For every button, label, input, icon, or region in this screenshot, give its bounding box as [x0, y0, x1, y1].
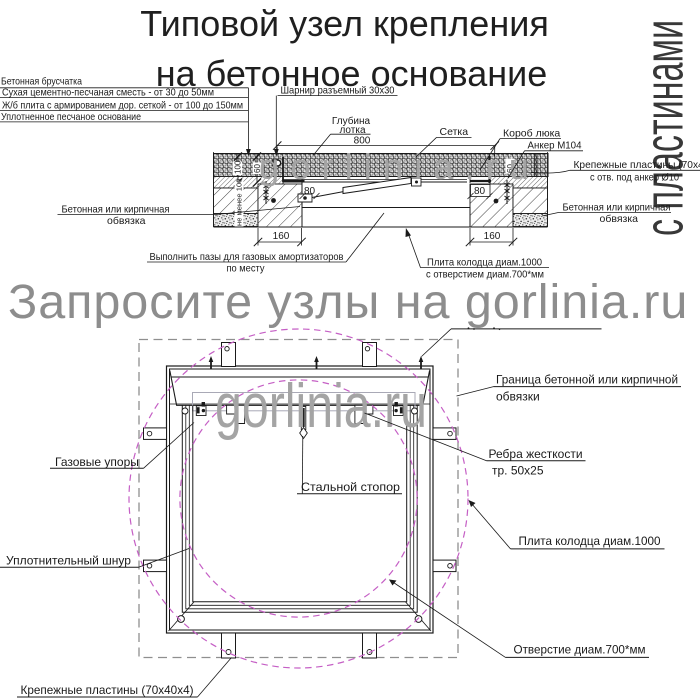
svg-text:обвязка: обвязка — [107, 215, 146, 227]
svg-text:gorlinia.ru: gorlinia.ru — [215, 372, 427, 441]
svg-text:Ж/б плита с армированием дор.: Ж/б плита с армированием дор. сеткой - о… — [2, 99, 243, 111]
svg-text:Крепежные пластины (70х40х4): Крепежные пластины (70х40х4) — [574, 159, 700, 171]
svg-text:Граница бетонной или кирпичной: Граница бетонной или кирпичной — [496, 373, 678, 387]
svg-text:Выполнить пазы для газовых амо: Выполнить пазы для газовых амортизаторов — [150, 251, 344, 263]
svg-text:80: 80 — [304, 186, 316, 197]
svg-text:Стальной стопор: Стальной стопор — [301, 480, 400, 494]
svg-text:Крепежные пластины (70х40х4): Крепежные пластины (70х40х4) — [21, 683, 194, 697]
svg-text:Бетонная или кирпичная: Бетонная или кирпичная — [62, 203, 170, 215]
svg-text:обвязки: обвязки — [496, 390, 540, 404]
svg-text:Сухая цементно-песчаная сместь: Сухая цементно-песчаная сместь - от 30 д… — [2, 86, 214, 98]
svg-text:Отверстие диам.700*мм: Отверстие диам.700*мм — [514, 642, 646, 656]
svg-text:тр. 50х25: тр. 50х25 — [492, 463, 544, 477]
svg-text:160: 160 — [273, 231, 290, 242]
svg-text:обвязка: обвязка — [600, 213, 639, 225]
svg-text:Сетка: Сетка — [440, 126, 469, 138]
svg-text:Типовой узел крепления: Типовой узел крепления — [140, 3, 549, 44]
svg-text:Уплотненное песчаное основание: Уплотненное песчаное основание — [1, 111, 141, 123]
svg-text:Уплотнительный шнур: Уплотнительный шнур — [6, 553, 131, 567]
svg-text:Газовые упоры: Газовые упоры — [55, 455, 139, 469]
svg-text:по месту: по месту — [227, 262, 266, 274]
svg-text:с отв. под анкер Ø10: с отв. под анкер Ø10 — [590, 171, 679, 183]
svg-text:gorlinia.ru: gorlinia.ru — [259, 146, 529, 187]
svg-text:Короб люка: Короб люка — [503, 127, 560, 139]
svg-text:Шарнир разъемный 30х30: Шарнир разъемный 30х30 — [281, 84, 395, 96]
svg-text:Плита колодца диам.1000: Плита колодца диам.1000 — [427, 256, 542, 268]
svg-text:не менее 100: не менее 100 — [235, 179, 244, 226]
svg-text:100: 100 — [234, 160, 243, 174]
svg-text:Ребра жесткости: Ребра жесткости — [489, 447, 583, 461]
svg-text:Анкер М104: Анкер М104 — [528, 140, 582, 152]
svg-text:800: 800 — [354, 136, 371, 147]
svg-text:Бетонная или кирпичная: Бетонная или кирпичная — [563, 201, 671, 213]
svg-text:80: 80 — [474, 186, 486, 197]
svg-text:Плита колодца диам.1000: Плита колодца диам.1000 — [519, 534, 661, 548]
svg-text:Запросите узлы на gorlinia.ru: Запросите узлы на gorlinia.ru — [8, 275, 688, 329]
svg-text:160: 160 — [484, 231, 501, 242]
